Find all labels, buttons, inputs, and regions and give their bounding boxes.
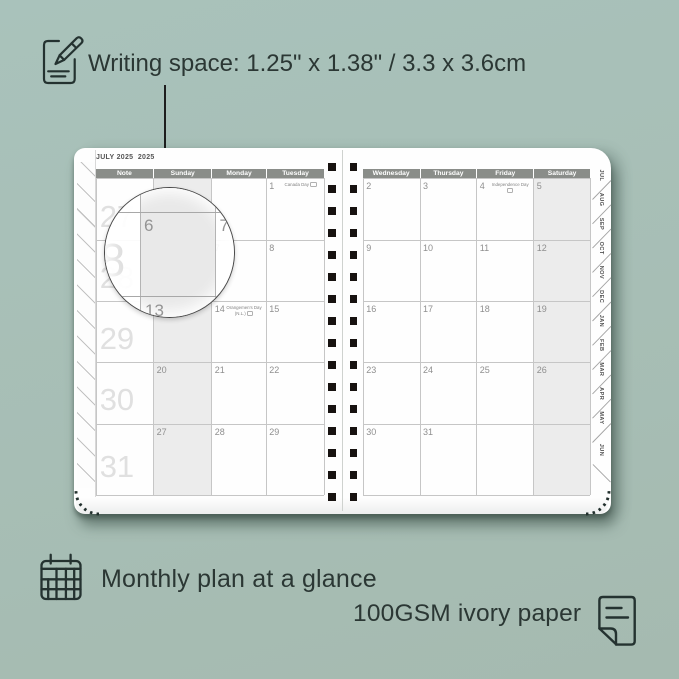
svg-text:MAY: MAY: [598, 411, 604, 424]
svg-text:NOV: NOV: [598, 266, 604, 279]
svg-text:JAN: JAN: [598, 315, 604, 327]
svg-text:OCT: OCT: [598, 242, 604, 255]
svg-text:JUL: JUL: [598, 170, 604, 182]
svg-text:AUG: AUG: [598, 193, 604, 207]
svg-text:APR: APR: [598, 387, 604, 400]
svg-text:JUN: JUN: [598, 444, 604, 456]
svg-text:MAR: MAR: [598, 362, 604, 376]
svg-text:FEB: FEB: [598, 339, 604, 351]
svg-text:DEC: DEC: [598, 290, 604, 303]
svg-text:SEP: SEP: [598, 218, 604, 230]
